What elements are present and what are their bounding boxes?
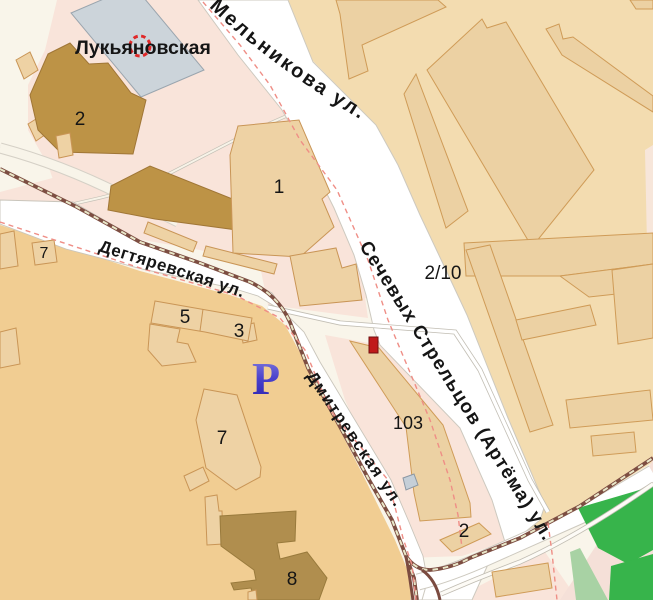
svg-text:3: 3 [234, 321, 245, 342]
svg-text:5: 5 [180, 307, 191, 328]
svg-text:7: 7 [217, 428, 228, 449]
svg-text:103: 103 [393, 413, 423, 433]
svg-text:2/10: 2/10 [425, 263, 462, 284]
svg-text:7: 7 [40, 245, 49, 262]
svg-text:Р: Р [252, 353, 280, 404]
svg-text:1: 1 [274, 177, 285, 198]
svg-text:2: 2 [75, 109, 86, 130]
svg-text:8: 8 [287, 569, 298, 590]
svg-text:2: 2 [459, 521, 470, 542]
svg-text:Лукьяновская: Лукьяновская [75, 37, 211, 59]
